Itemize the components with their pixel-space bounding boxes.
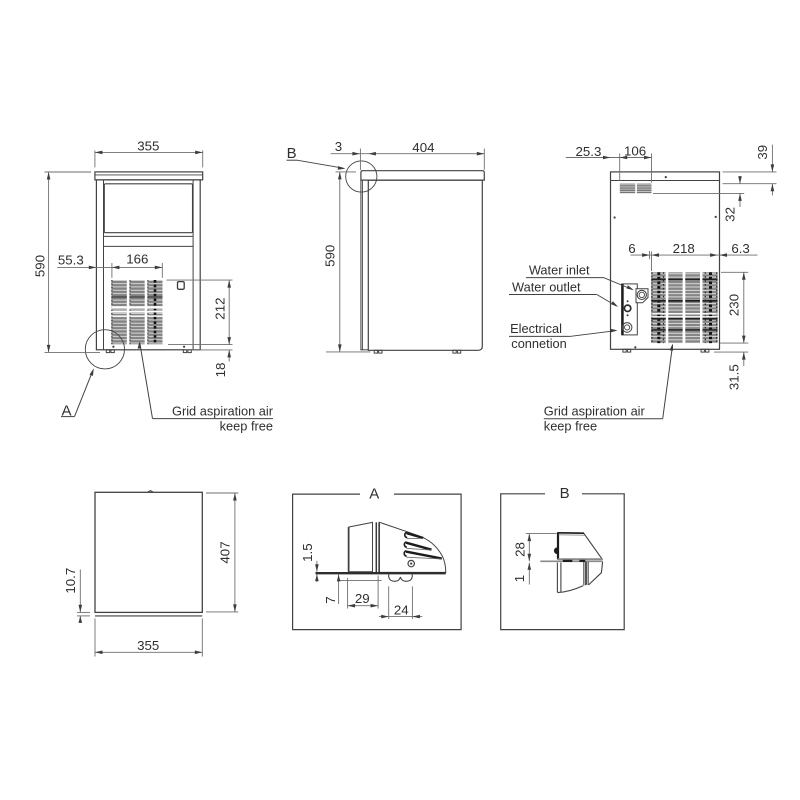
svg-text:connetion: connetion [511,336,567,351]
svg-text:B: B [560,485,570,502]
svg-text:3: 3 [335,139,342,154]
svg-text:18: 18 [213,363,228,378]
svg-text:404: 404 [412,140,434,155]
svg-text:355: 355 [137,638,159,653]
svg-text:1.5: 1.5 [300,543,315,562]
svg-text:25.3: 25.3 [575,144,601,159]
svg-text:Water inlet: Water inlet [529,263,590,278]
svg-text:A: A [369,486,379,503]
svg-text:29: 29 [355,591,370,606]
svg-text:212: 212 [213,298,228,320]
svg-text:218: 218 [673,241,695,256]
svg-text:7: 7 [323,596,338,603]
svg-text:32: 32 [723,207,738,222]
svg-text:55.3: 55.3 [58,252,84,267]
svg-text:230: 230 [726,294,741,316]
svg-text:6: 6 [628,241,635,256]
svg-text:407: 407 [218,541,233,563]
svg-text:Grid aspiration air: Grid aspiration air [544,403,646,418]
svg-text:6.3: 6.3 [731,241,750,256]
svg-text:590: 590 [33,255,48,277]
svg-text:keep free: keep free [544,419,597,434]
svg-text:Electrical: Electrical [510,321,562,336]
svg-text:31.5: 31.5 [726,364,741,390]
svg-text:1: 1 [512,575,527,582]
svg-text:28: 28 [513,542,528,557]
svg-text:Grid aspiration air: Grid aspiration air [172,403,274,418]
svg-text:106: 106 [624,144,646,159]
svg-text:166: 166 [126,252,148,267]
svg-text:keep free: keep free [220,419,273,434]
svg-text:B: B [287,145,297,162]
svg-text:Water outlet: Water outlet [512,279,581,294]
svg-text:590: 590 [322,245,337,267]
svg-text:39: 39 [755,145,770,160]
svg-text:24: 24 [394,603,409,618]
svg-text:355: 355 [137,138,159,153]
svg-text:10.7: 10.7 [63,568,78,594]
